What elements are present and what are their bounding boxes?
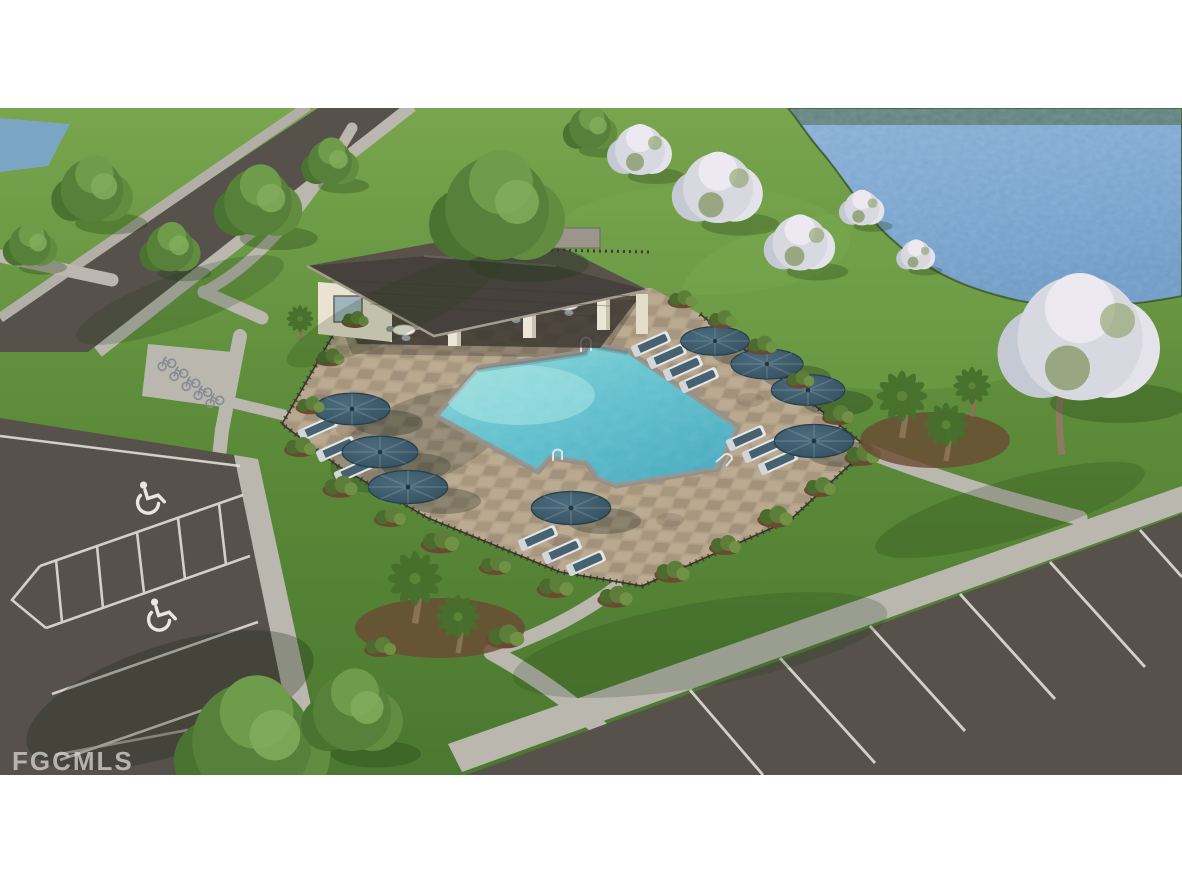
rendered-aerial-photo: FGCMLS [0,0,1182,886]
scene-canvas: FGCMLS [0,0,1182,886]
umbrella [314,393,390,425]
umbrella [774,425,853,458]
photo-content: FGCMLS [0,105,1182,827]
watermark: FGCMLS [12,746,134,776]
umbrella [531,492,610,525]
umbrella [681,327,749,356]
umbrella [342,436,418,468]
column [636,294,648,334]
umbrella [368,471,447,504]
